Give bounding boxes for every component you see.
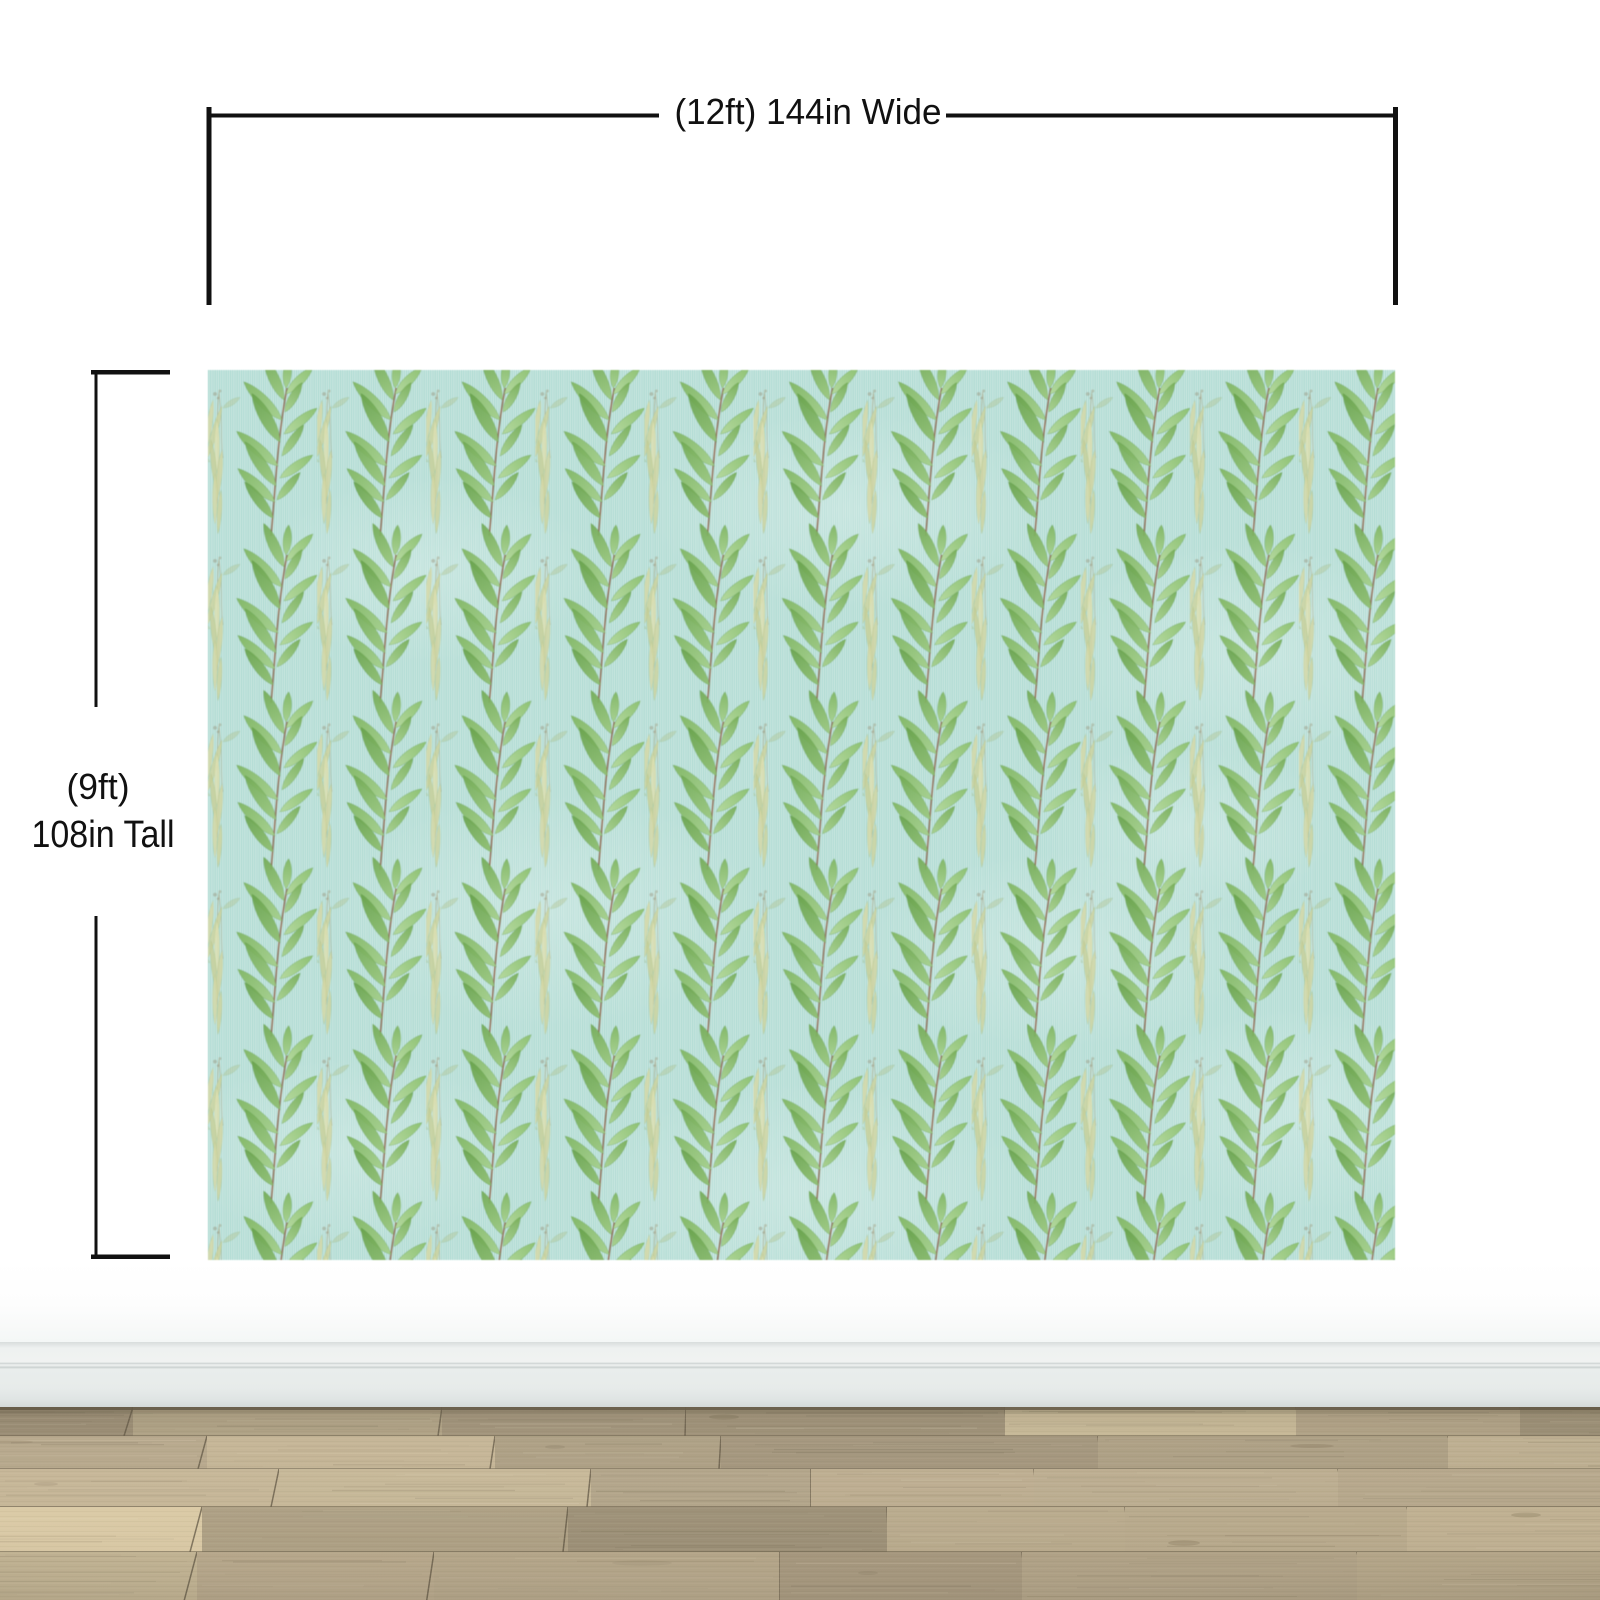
svg-text:(12ft) 144in Wide: (12ft) 144in Wide xyxy=(675,91,942,132)
svg-text:108in Tall: 108in Tall xyxy=(32,814,175,856)
svg-text:(9ft): (9ft) xyxy=(67,766,130,807)
